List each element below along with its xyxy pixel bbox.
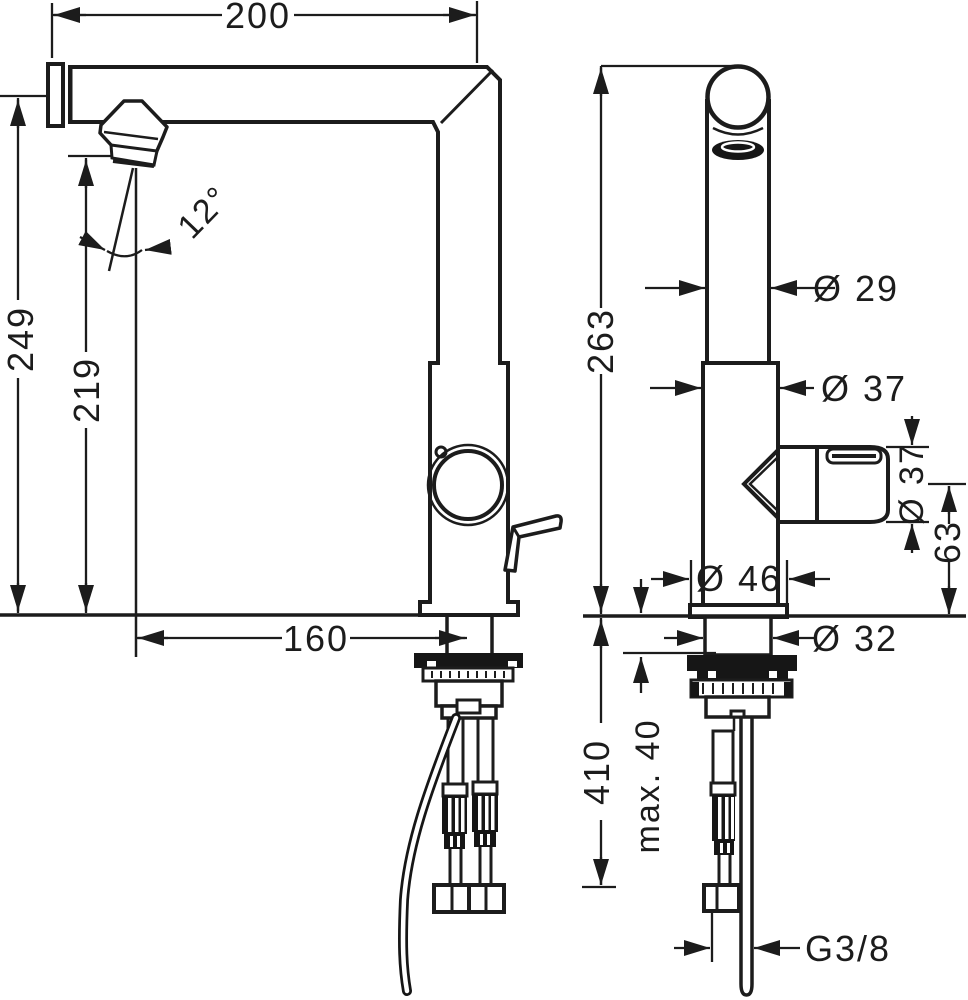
dim-handle-axis-height-label: 63	[927, 520, 968, 564]
dim-handle-diameter: Ø 37	[886, 416, 931, 553]
dim-stream-angle: 12°	[80, 179, 238, 257]
friction-washer-side	[691, 680, 792, 697]
dim-spout-diameter: Ø 29	[645, 268, 899, 309]
hex-fitting-side	[704, 885, 739, 911]
dim-handle-diameter-label: Ø 37	[893, 443, 931, 525]
horseshoe-washer-side	[687, 655, 797, 671]
dim-connection-thread-label: G3/8	[805, 928, 891, 969]
dim-base-diameter-label: Ø 46	[696, 558, 782, 599]
shank-side	[705, 617, 771, 655]
spout-end-cap	[48, 64, 63, 126]
dim-base-diameter: Ø 46	[651, 558, 830, 603]
dim-outlet-offset: 160	[136, 618, 467, 659]
dimensions-side: 263 Ø 29 Ø 37 Ø 37 63	[576, 66, 968, 969]
side-view	[583, 67, 966, 996]
dim-spout-clearance: 219	[66, 156, 112, 613]
dim-spout-reach-label: 200	[225, 0, 291, 36]
handle-lever-front	[505, 516, 561, 571]
dim-height-above-deck: 263	[580, 66, 733, 614]
front-view	[0, 64, 561, 991]
dim-spout-diameter-label: Ø 29	[813, 268, 899, 309]
dim-max-counter-thickness-label: max. 40	[629, 719, 667, 854]
dim-outlet-offset-label: 160	[283, 618, 349, 659]
supply-hoses-front	[403, 718, 504, 991]
dim-hose-length-label: 410	[576, 739, 617, 805]
dim-handle-axis-height: 63	[927, 484, 968, 614]
dim-stream-angle-label: 12°	[170, 179, 237, 247]
mounting-hardware-side	[687, 617, 797, 717]
dim-body-diameter-label: Ø 37	[821, 368, 907, 409]
braided-section-right	[472, 794, 498, 847]
flexible-hose-straight	[741, 717, 752, 995]
dim-total-height-label: 249	[0, 306, 41, 372]
dim-shank-diameter-label: Ø 32	[812, 618, 898, 659]
dim-max-counter-thickness: max. 40	[623, 579, 716, 853]
dim-height-above-deck-label: 263	[580, 308, 621, 374]
selector-dial	[428, 445, 508, 525]
dim-spout-clearance-label: 219	[66, 357, 107, 423]
dim-hose-length: 410	[576, 618, 617, 887]
braided-section-left	[442, 796, 467, 849]
dial-face	[434, 451, 502, 519]
spout-bend-side	[708, 67, 769, 128]
handle-side	[778, 447, 888, 522]
dim-spout-reach: 200	[52, 0, 477, 63]
drawing-canvas: 200 249 219 12° 1	[0, 0, 968, 1000]
dim-total-height: 249	[0, 96, 46, 613]
mounting-hardware-front	[414, 617, 523, 718]
dim-connection-thread: G3/8	[674, 912, 891, 969]
technical-drawing: 200 249 219 12° 1	[0, 0, 968, 1000]
